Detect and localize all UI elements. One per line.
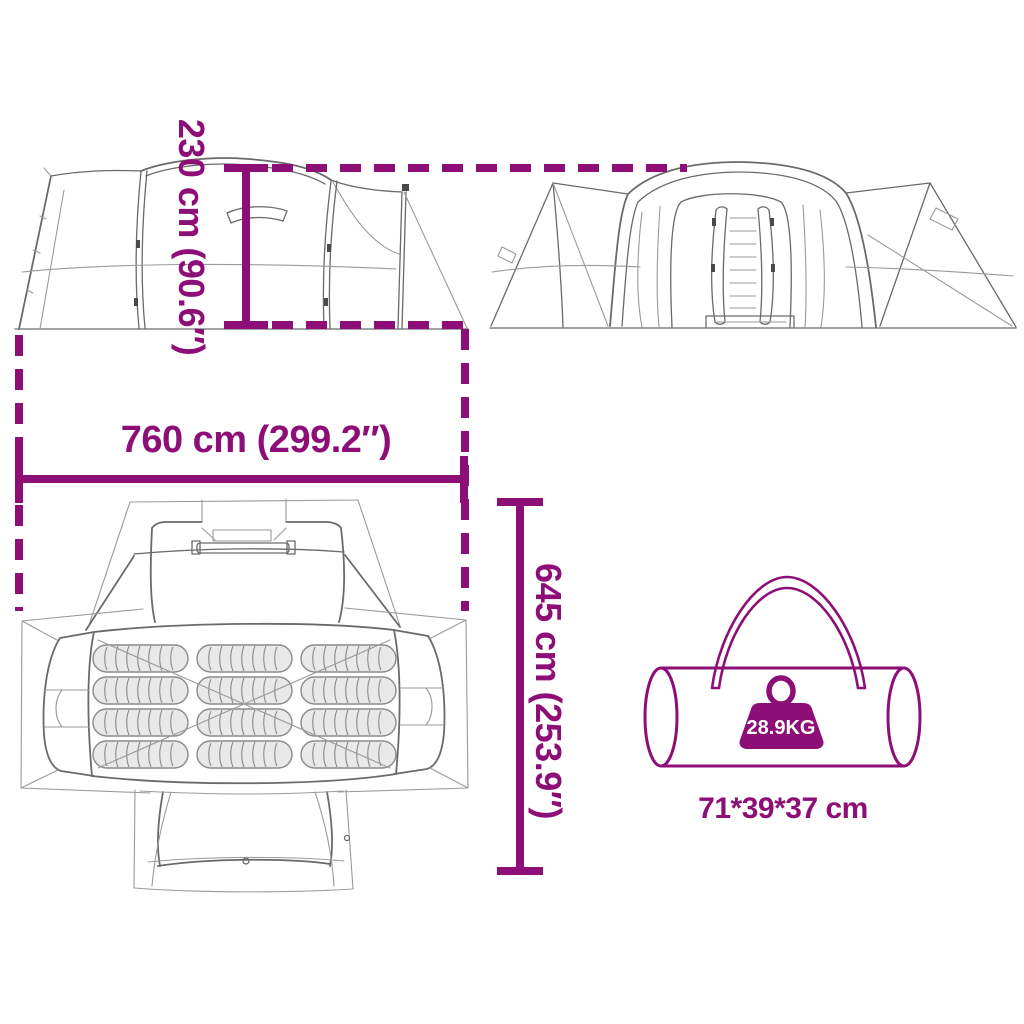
bag-handle xyxy=(712,577,865,688)
sleeping-mat xyxy=(197,741,292,768)
bag-weight-label: 28.9KG xyxy=(747,717,816,739)
length-label: 760 cm (299.2″) xyxy=(121,419,392,461)
product-dimensions-diagram: 230 cm (90.6″) 760 cm (299.2″) 645 cm (2… xyxy=(0,0,1024,1024)
diagram-svg: 230 cm (90.6″) 760 cm (299.2″) 645 cm (2… xyxy=(0,0,1024,1024)
sleeping-mat xyxy=(197,677,292,704)
tent-top-view xyxy=(21,499,468,892)
sleeping-mat xyxy=(197,645,292,672)
height-label: 230 cm (90.6″) xyxy=(171,119,212,355)
tent-side-view xyxy=(15,158,468,329)
height-measure-line xyxy=(224,168,268,325)
sleeping-mat xyxy=(301,709,396,736)
sleeping-mat xyxy=(301,677,396,704)
height-dimension: 230 cm (90.6″) xyxy=(171,119,687,355)
length-measure-line xyxy=(19,456,464,503)
length-dimension: 760 cm (299.2″) xyxy=(19,329,465,611)
depth-label: 645 cm (253.9″) xyxy=(528,563,569,819)
weight-icon: 28.9KG xyxy=(739,678,823,749)
sleeping-mat xyxy=(93,709,188,736)
sleeping-mats xyxy=(93,645,396,768)
tent-front-view xyxy=(490,162,1016,328)
sleeping-mat xyxy=(197,709,292,736)
depth-dimension: 645 cm (253.9″) xyxy=(497,502,569,871)
sleeping-mat xyxy=(93,677,188,704)
bag-size-label: 71*39*37 cm xyxy=(698,792,868,825)
carry-bag: 28.9KG 71*39*37 cm xyxy=(645,577,920,825)
